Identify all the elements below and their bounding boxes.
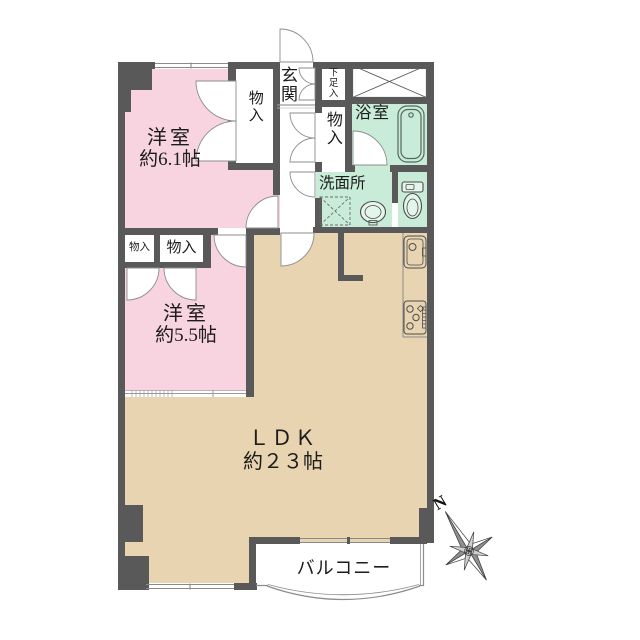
shoe-cabinet-label: 下足入 — [326, 67, 337, 99]
compass-rose-icon: N — [412, 481, 510, 595]
window-top-bedroom1 — [155, 63, 228, 69]
bathtub-icon — [398, 106, 424, 162]
closet-hall-lower-label: 物入 — [323, 111, 341, 147]
ldk-size: 約２３帖 — [203, 451, 363, 473]
bathroom-door-arc — [353, 131, 387, 165]
closet-hall-lower-door-arc — [290, 138, 315, 162]
kitchen-sink-icon — [404, 236, 426, 268]
floor-plan: N 洋室 約6.1帖 洋室 約5.5帖 ＬＤＫ 約２３帖 バルコニー 玄関 下足… — [0, 0, 640, 640]
entrance-door-arc — [280, 29, 313, 62]
fixtures-overlay: N — [0, 0, 640, 640]
washing-machine-pan-icon — [320, 197, 350, 225]
closet-hall-lower-door-arc — [290, 113, 315, 138]
balcony-label: バルコニー — [274, 558, 414, 578]
bedroom2-name: 洋室 — [116, 303, 256, 325]
closet-hall-upper-label: 物入 — [246, 90, 263, 124]
washroom-label: 洗面所 — [319, 175, 366, 192]
closet-bedroom2-large-door-arc — [164, 268, 196, 300]
bathroom-label: 浴室 — [355, 104, 390, 122]
gas-stove-icon — [404, 301, 426, 334]
closet-bedroom2-small-label: 物入 — [124, 242, 155, 254]
shoe-cabinet-door-arc — [299, 84, 315, 100]
closet-bedroom2-small-door-arc — [127, 268, 159, 300]
room-bedroom1-label: 洋室 約6.1帖 — [100, 127, 240, 171]
bedroom1-door-arc — [246, 196, 278, 228]
entrance-step-line — [277, 105, 315, 108]
bedroom1-name: 洋室 — [100, 127, 240, 149]
ldk-name: ＬＤＫ — [203, 427, 363, 451]
washbasin-icon — [361, 202, 386, 226]
compass-north-label: N — [430, 491, 451, 514]
window-balcony — [300, 539, 390, 543]
pipe-space-x-icon — [353, 66, 427, 98]
shoe-cabinet-door-arc — [299, 68, 315, 84]
partition-track-bedroom2 — [125, 390, 246, 397]
closet-hall-upper-door-arc — [196, 81, 236, 121]
bedroom2-size: 約5.5帖 — [116, 325, 256, 346]
closet-bedroom2-large-label: 物入 — [159, 240, 204, 257]
entrance-label: 玄関 — [278, 66, 297, 104]
room-bedroom2-label: 洋室 約5.5帖 — [116, 303, 256, 347]
bedroom2-door-arc — [214, 235, 246, 267]
toilet-icon — [402, 182, 423, 219]
washroom-door-arc — [290, 172, 315, 197]
bedroom1-size: 約6.1帖 — [100, 149, 240, 170]
room-ldk-label: ＬＤＫ 約２３帖 — [203, 427, 363, 473]
window-bottom-ldk — [146, 584, 234, 590]
ldk-entry-door-arc — [281, 233, 314, 266]
